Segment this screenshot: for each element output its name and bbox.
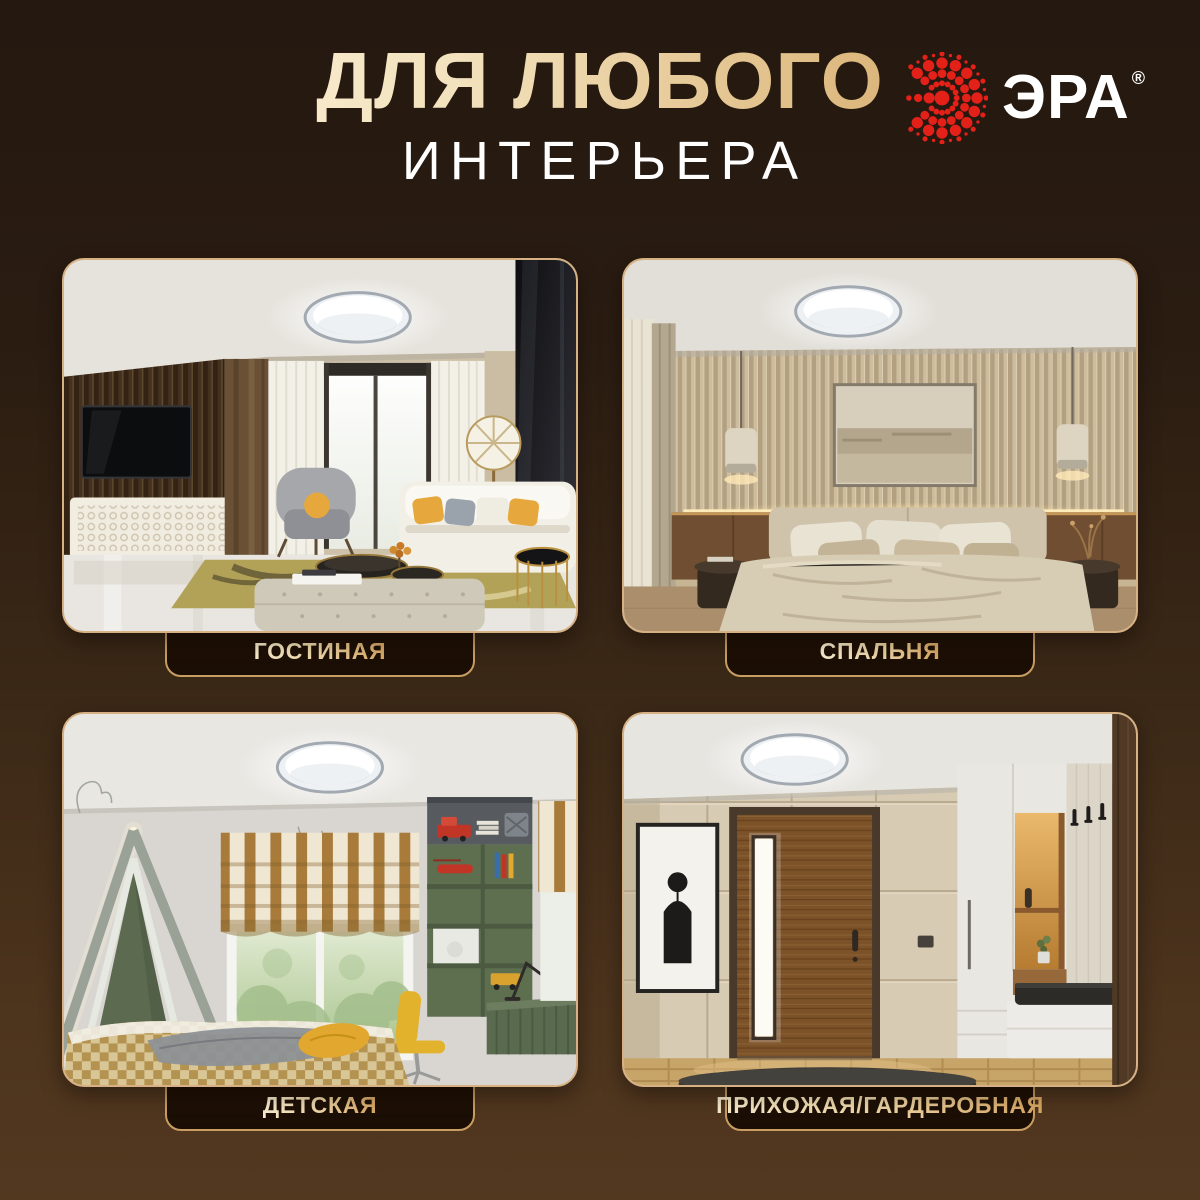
- toy-helicopter: [437, 864, 473, 873]
- round-led-ceiling-light: [703, 720, 886, 799]
- side-window-blind: [538, 801, 576, 892]
- interior-card-hallway: ПРИХОЖАЯ/ГАРДЕРОБНАЯ: [622, 712, 1138, 1087]
- interior-card-bedroom: СПАЛЬНЯ: [622, 258, 1138, 633]
- interior-card-kids-room: ДЕТСКАЯ: [62, 712, 578, 1087]
- interior-cards-grid: ГОСТИНАЯ: [62, 258, 1138, 1087]
- hallway-photo: [622, 712, 1138, 1087]
- dark-wood-panel: [1112, 714, 1136, 1085]
- room-label: СПАЛЬНЯ: [820, 638, 941, 665]
- room-label: ДЕТСКАЯ: [263, 1092, 377, 1119]
- sheer-curtain: [624, 319, 654, 631]
- kids-room-photo: [62, 712, 578, 1087]
- striped-roman-blind: [221, 833, 419, 932]
- light-switch: [918, 936, 934, 948]
- round-led-ceiling-light: [266, 278, 449, 357]
- round-led-ceiling-light: [239, 728, 422, 807]
- brand-name: ЭРА®: [1002, 67, 1146, 129]
- living-room-scene: [64, 260, 576, 631]
- toy-truck-red: [437, 825, 471, 838]
- bedroom-scene: [624, 260, 1136, 631]
- kids-room-scene: [64, 714, 576, 1085]
- room-label: ПРИХОЖАЯ/ГАРДЕРОБНАЯ: [716, 1092, 1044, 1119]
- room-label: ГОСТИНАЯ: [254, 638, 387, 665]
- era-dotted-sunburst-icon: [896, 52, 988, 144]
- era-brand-logo: ЭРА®: [896, 52, 1146, 144]
- registered-mark: ®: [1132, 69, 1146, 87]
- brand-name-text: ЭРА: [1002, 67, 1130, 129]
- living-room-photo: [62, 258, 578, 633]
- hallway-scene: [624, 714, 1136, 1085]
- door-handle: [852, 930, 858, 952]
- bedroom-photo: [622, 258, 1138, 633]
- round-led-ceiling-light: [757, 272, 940, 351]
- curtain-panel: [652, 323, 676, 631]
- interior-card-living-room: ГОСТИНАЯ: [62, 258, 578, 633]
- frosted-glass-strip: [755, 839, 773, 1037]
